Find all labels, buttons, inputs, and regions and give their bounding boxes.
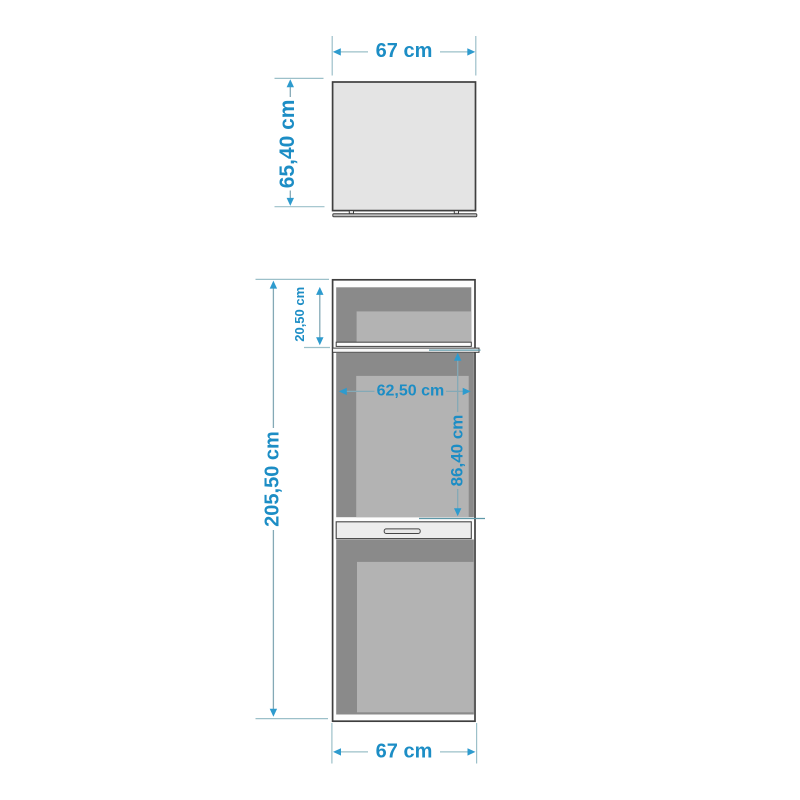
svg-text:67 cm: 67 cm [376,40,433,62]
svg-text:86,40 cm: 86,40 cm [447,415,466,487]
svg-text:62,50 cm: 62,50 cm [377,383,445,400]
svg-text:67 cm: 67 cm [376,740,433,762]
svg-text:205,50 cm: 205,50 cm [261,431,283,527]
svg-text:20,50 cm: 20,50 cm [292,287,307,342]
svg-text:65,40 cm: 65,40 cm [276,100,299,189]
